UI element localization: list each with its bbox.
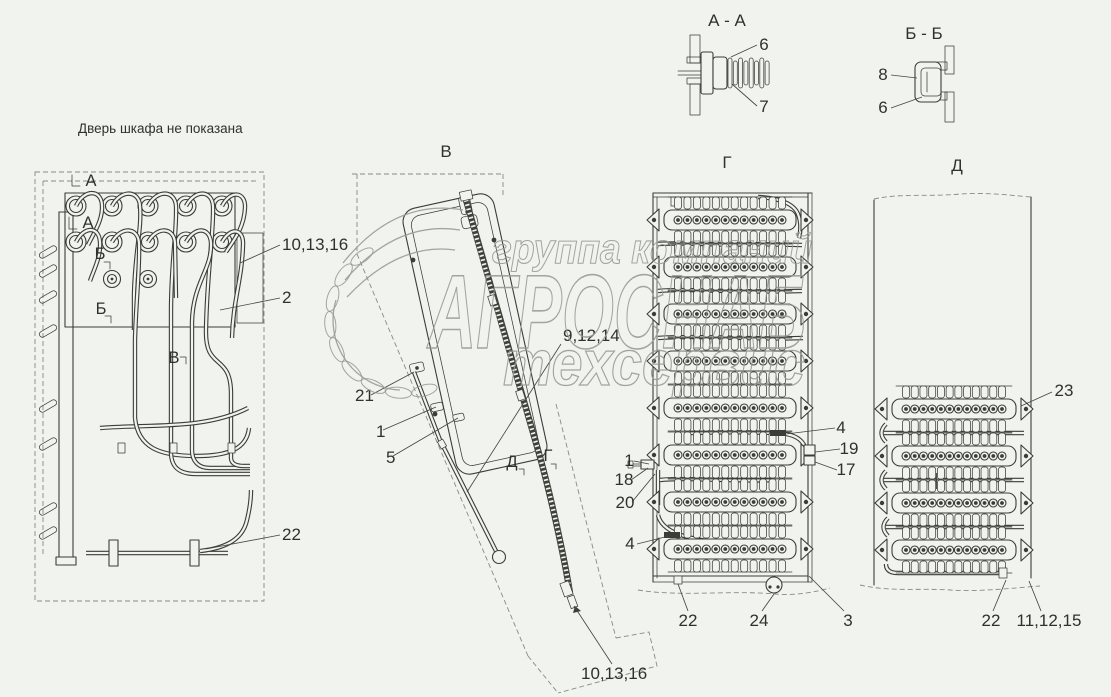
cable-end-connector <box>560 581 581 613</box>
leader-line <box>809 576 844 611</box>
callout-10-13-16-bottom: 10,13,16 <box>581 664 647 683</box>
cabinet-frame-rail <box>38 212 76 565</box>
callout-2: 2 <box>282 288 291 307</box>
manifold-clamp <box>190 540 199 566</box>
callout-4-top: 4 <box>836 418 845 437</box>
callout-21: 21 <box>355 386 374 405</box>
section-bb-title: Б - Б <box>905 24 942 43</box>
leader-line <box>678 584 688 611</box>
callout-23: 23 <box>1055 381 1074 400</box>
section-aa: А - А 6 7 <box>678 11 769 116</box>
edge-gland <box>641 460 654 469</box>
door-bracket <box>430 402 443 412</box>
cable-clamp <box>770 430 786 436</box>
callout-20: 20 <box>616 493 635 512</box>
marker-b-top: Б <box>95 245 106 263</box>
bottom-tab <box>674 576 682 584</box>
section-aa-title: А - А <box>708 11 746 30</box>
terminal-strip <box>875 433 1033 479</box>
section-bb: Б - Б 8 6 <box>878 24 954 122</box>
leader-line <box>371 372 414 395</box>
callout-4-bottom: 4 <box>625 534 634 553</box>
callout-7: 7 <box>759 97 768 116</box>
terminal-strip <box>875 480 1033 526</box>
callout-8: 8 <box>878 65 887 84</box>
callout-1: 1 <box>376 422 385 441</box>
cabinet-callouts: 10,13,16 2 22 <box>206 235 348 549</box>
view-g-title: Г <box>722 153 731 172</box>
blank-gland <box>104 271 121 288</box>
cable-clamp <box>664 532 680 538</box>
view-d-title: Д <box>951 156 963 175</box>
note-door-not-shown: Дверь шкафа не показана <box>78 121 243 136</box>
marker-b-bottom: Б <box>96 300 107 318</box>
bottom-tab <box>999 568 1007 578</box>
aa-corrugated-hose <box>728 58 769 88</box>
diagram-page: Дверь шкафа не показана <box>0 0 1111 697</box>
callout-6: 6 <box>759 35 768 54</box>
edge-connector <box>804 456 815 465</box>
leader-line <box>815 462 837 470</box>
leader-line <box>393 418 458 456</box>
leader-line <box>383 407 436 430</box>
blank-gland <box>140 271 157 288</box>
terminal-strip <box>875 527 1033 573</box>
leader-line <box>815 449 840 452</box>
bb-cap-fitting <box>915 62 941 102</box>
leader-line <box>1021 392 1052 406</box>
marker-g: Г <box>544 447 553 465</box>
cabinet-markers: А А Б Б В <box>69 172 186 367</box>
callout-11-12-15: 11,12,15 <box>1017 611 1082 630</box>
leader-line <box>206 535 280 549</box>
marker-v: В <box>168 349 179 367</box>
terminal-strip <box>875 386 1033 432</box>
bottom-grommet <box>766 577 782 593</box>
edge-connector <box>804 445 815 455</box>
frame-pegs <box>38 245 57 541</box>
callout-22: 22 <box>679 611 698 630</box>
manifold-clamp <box>109 540 118 566</box>
callout-10-13-16: 10,13,16 <box>282 235 348 254</box>
callout-18: 18 <box>615 470 634 489</box>
marker-d: Д <box>506 453 517 471</box>
callout-22: 22 <box>982 611 1001 630</box>
leader-line <box>574 606 612 664</box>
door-screw <box>433 412 438 417</box>
watermark: группа компаний АГРОСНАБ техсервис <box>324 208 812 399</box>
leader-line <box>220 298 280 310</box>
callout-17: 17 <box>837 460 856 479</box>
callout-5: 5 <box>386 448 395 467</box>
leader-line <box>891 97 922 108</box>
leader-line <box>240 245 280 263</box>
leader-line <box>762 594 774 611</box>
stay-rod-ball <box>493 551 506 564</box>
leader-line <box>993 580 1006 611</box>
leader-line <box>891 75 917 78</box>
leader-line <box>786 428 835 434</box>
door-latch <box>409 362 425 374</box>
view-v-title: В <box>440 142 451 161</box>
aa-fitting <box>678 52 769 94</box>
callout-3: 3 <box>843 611 852 630</box>
diagram-canvas: Дверь шкафа не показана <box>0 0 1111 697</box>
cabinet-rear-view: А А Б Б В 10,13,16 2 22 <box>35 172 348 601</box>
leader-line <box>731 45 757 57</box>
terminal-strip <box>647 479 813 525</box>
marker-a-top: А <box>85 172 96 190</box>
terminal-strip <box>647 432 813 478</box>
door-screw <box>411 258 416 263</box>
view-d-panel: Д 23 22 11,12,15 <box>860 156 1081 630</box>
callout-19: 19 <box>840 439 859 458</box>
callout-1: 1 <box>624 451 633 470</box>
callout-24: 24 <box>750 611 769 630</box>
leader-line <box>1029 581 1041 611</box>
callout-22: 22 <box>282 525 301 544</box>
callout-6: 6 <box>878 98 887 117</box>
marker-a-mid: А <box>82 214 93 232</box>
watermark-line-3: техсервис <box>503 327 805 399</box>
door-stay-rod <box>414 372 506 564</box>
